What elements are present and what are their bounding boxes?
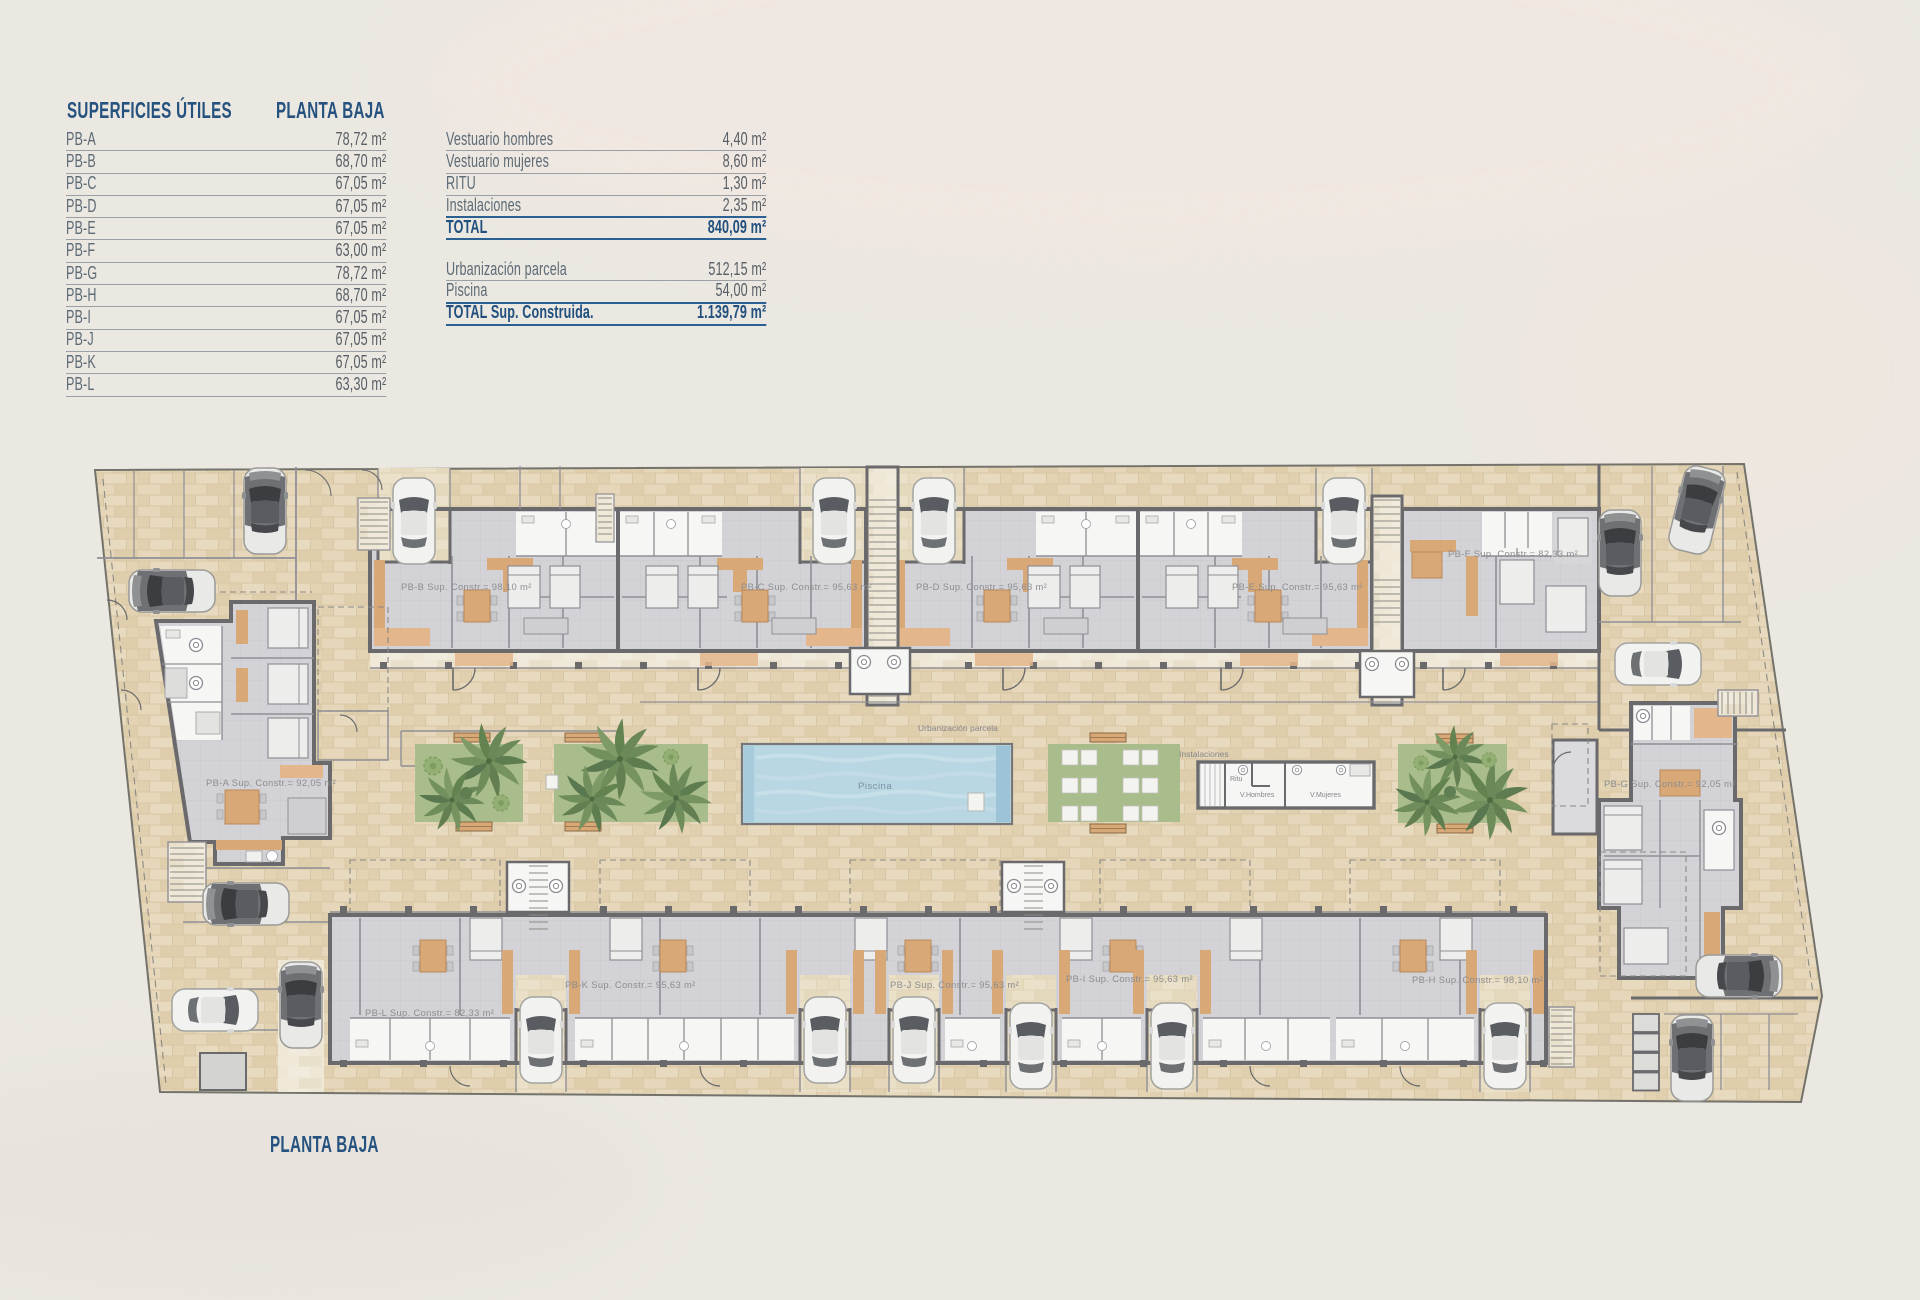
svg-text:PB-K Sup. Constr.= 95,63 m²: PB-K Sup. Constr.= 95,63 m²	[565, 979, 696, 990]
svg-text:PB-B Sup. Constr.= 98,10 m²: PB-B Sup. Constr.= 98,10 m²	[401, 581, 532, 592]
svg-text:PB-L Sup. Constr.= 82,33 m²: PB-L Sup. Constr.= 82,33 m²	[365, 1007, 494, 1018]
svg-text:PB-C Sup. Constr.= 95,63 m²: PB-C Sup. Constr.= 95,63 m²	[741, 581, 872, 592]
svg-text:PB-F Sup. Constr.= 82,33 m²: PB-F Sup. Constr.= 82,33 m²	[1448, 548, 1578, 559]
svg-text:PB-D Sup. Constr.= 95,63 m²: PB-D Sup. Constr.= 95,63 m²	[916, 581, 1047, 592]
svg-text:Piscina: Piscina	[858, 781, 892, 792]
svg-text:PB-J Sup. Constr.= 95,63 m²: PB-J Sup. Constr.= 95,63 m²	[890, 979, 1019, 990]
svg-text:PB-I Sup. Constr.= 95,63 m²: PB-I Sup. Constr.= 95,63 m²	[1066, 973, 1193, 984]
svg-text:V.Mujeres: V.Mujeres	[1310, 792, 1341, 799]
svg-text:Instalaciones: Instalaciones	[1179, 749, 1229, 759]
svg-text:PB-G Sup. Constr.= 92,05 m²: PB-G Sup. Constr.= 92,05 m²	[1604, 778, 1736, 789]
svg-text:PB-E Sup. Constr.= 95,63 m²: PB-E Sup. Constr.= 95,63 m²	[1232, 581, 1363, 592]
svg-text:PB-H Sup. Constr.= 98,10 m²: PB-H Sup. Constr.= 98,10 m²	[1412, 974, 1543, 985]
svg-text:Urbanización parcela: Urbanización parcela	[918, 723, 998, 733]
svg-text:PB-A Sup. Constr.= 92,05 m²: PB-A Sup. Constr.= 92,05 m²	[206, 777, 336, 788]
svg-text:V.Hombres: V.Hombres	[1240, 792, 1275, 799]
svg-text:Ritu: Ritu	[1230, 776, 1243, 783]
